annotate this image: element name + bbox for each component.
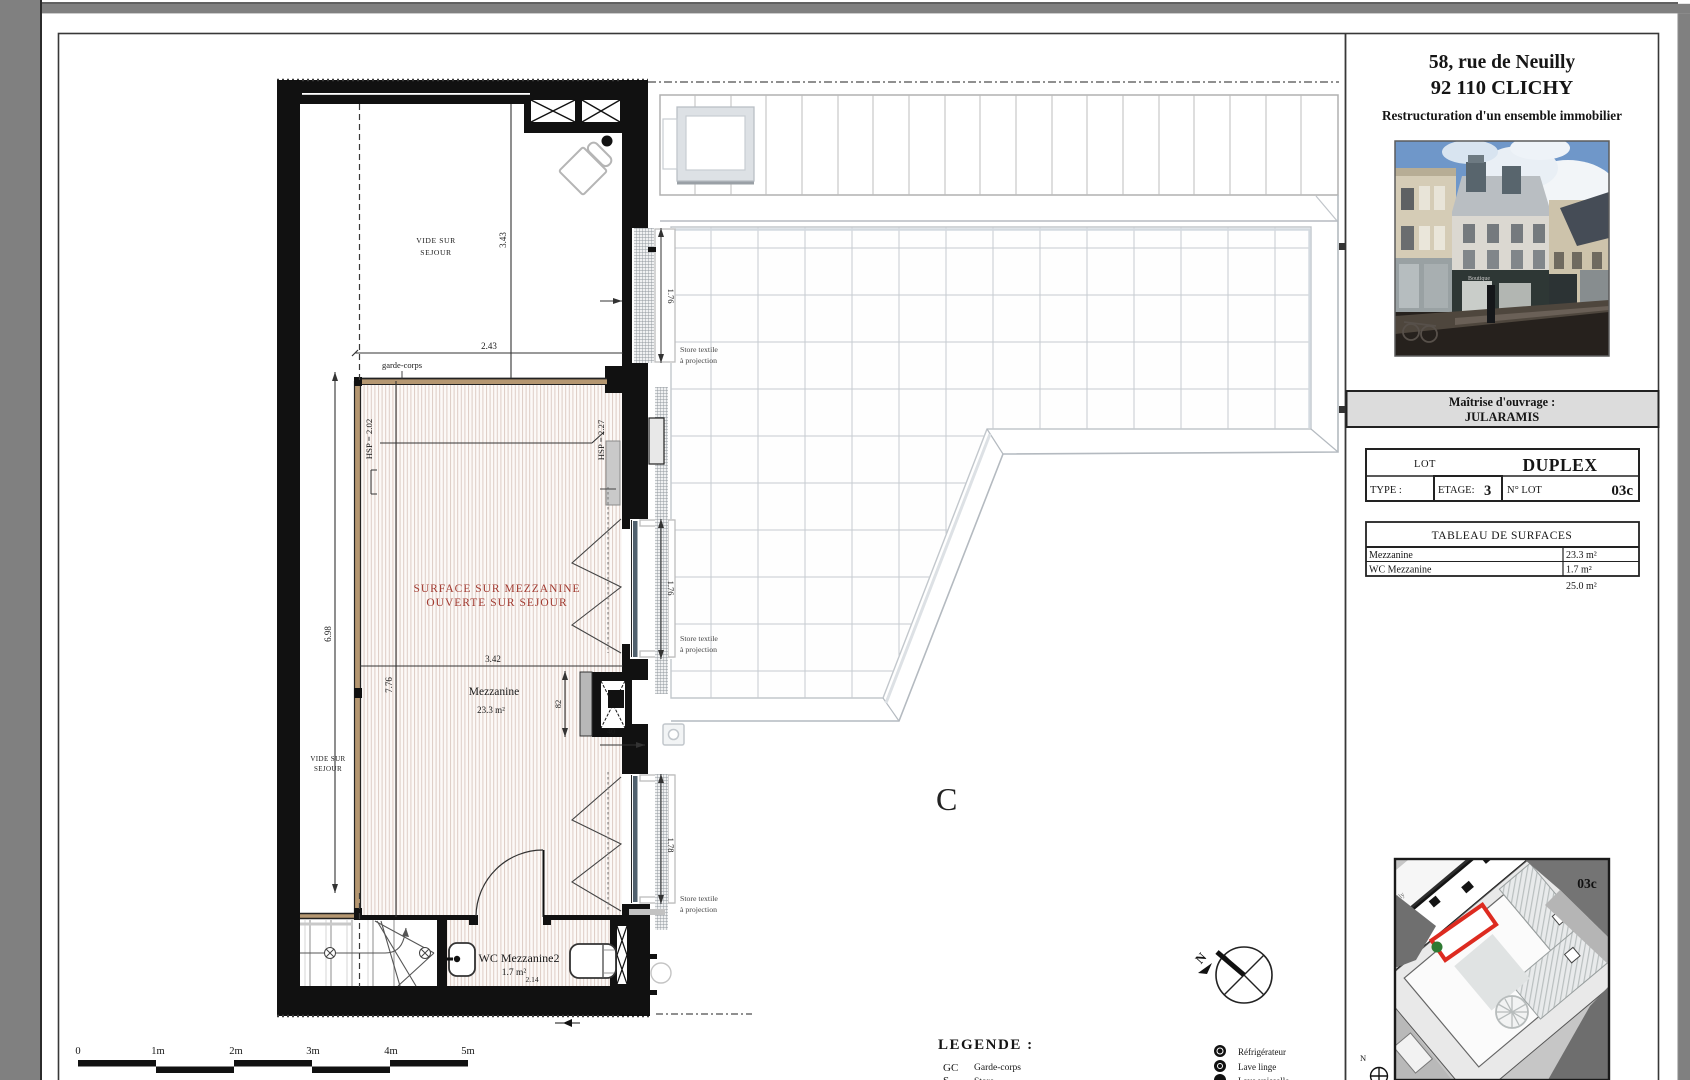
svg-text:Lave vaisselle: Lave vaisselle	[1238, 1076, 1289, 1080]
svg-text:N: N	[1360, 1053, 1366, 1063]
svg-text:ETAGE:: ETAGE:	[1438, 485, 1475, 496]
svg-text:3m: 3m	[306, 1046, 319, 1057]
svg-text:HSP = 2.27: HSP = 2.27	[596, 419, 606, 460]
svg-text:7.76: 7.76	[384, 677, 394, 693]
svg-text:N° LOT: N° LOT	[1507, 485, 1542, 496]
svg-text:SEJOUR: SEJOUR	[314, 765, 342, 773]
svg-text:2.43: 2.43	[481, 341, 497, 351]
svg-text:1.76: 1.76	[666, 581, 676, 596]
svg-text:92 110 CLICHY: 92 110 CLICHY	[1431, 77, 1574, 99]
svg-text:1.7 m²: 1.7 m²	[1566, 565, 1592, 576]
svg-text:3: 3	[1484, 483, 1491, 499]
svg-text:garde-corps: garde-corps	[382, 360, 422, 370]
svg-text:2m: 2m	[229, 1046, 242, 1057]
svg-text:1m: 1m	[151, 1046, 164, 1057]
svg-text:Réfrigérateur: Réfrigérateur	[1238, 1047, 1286, 1057]
svg-text:2.14: 2.14	[525, 975, 538, 984]
svg-text:23.3 m²: 23.3 m²	[477, 705, 505, 715]
svg-text:WC Mezzanine: WC Mezzanine	[1369, 565, 1432, 576]
svg-text:5m: 5m	[461, 1046, 474, 1057]
svg-text:23.3 m²: 23.3 m²	[1566, 550, 1597, 561]
svg-text:à projection: à projection	[680, 356, 717, 365]
svg-text:JULARAMIS: JULARAMIS	[1465, 410, 1539, 424]
svg-text:TYPE :: TYPE :	[1370, 485, 1402, 496]
svg-text:Garde-corps: Garde-corps	[974, 1063, 1021, 1073]
svg-text:TABLEAU DE SURFACES: TABLEAU DE SURFACES	[1432, 530, 1573, 542]
svg-text:1.7 m²: 1.7 m²	[502, 968, 527, 978]
svg-text:1.76: 1.76	[666, 289, 676, 304]
svg-text:OUVERTE SUR SEJOUR: OUVERTE SUR SEJOUR	[426, 597, 567, 609]
svg-text:à projection: à projection	[680, 905, 717, 914]
svg-text:Restructuration d'un ensemble: Restructuration d'un ensemble immobilier	[1382, 108, 1622, 123]
svg-text:Maîtrise d'ouvrage :: Maîtrise d'ouvrage :	[1449, 395, 1555, 409]
svg-text:VIDE SUR: VIDE SUR	[416, 236, 456, 245]
svg-text:C: C	[936, 781, 957, 817]
svg-text:0: 0	[75, 1046, 80, 1057]
svg-text:82: 82	[553, 700, 563, 709]
svg-text:58, rue de Neuilly: 58, rue de Neuilly	[1429, 52, 1575, 73]
svg-text:40: 40	[607, 726, 616, 736]
svg-text:WC Mezzanine2: WC Mezzanine2	[479, 951, 560, 965]
svg-text:Mezzanine: Mezzanine	[469, 686, 519, 698]
svg-text:LOT: LOT	[1414, 459, 1436, 470]
svg-text:03c: 03c	[1611, 483, 1633, 499]
svg-text:Lave linge: Lave linge	[1238, 1062, 1276, 1072]
svg-text:Store textile: Store textile	[680, 634, 718, 643]
svg-text:1.78: 1.78	[666, 838, 676, 853]
svg-text:LEGENDE :: LEGENDE :	[938, 1037, 1034, 1053]
svg-text:4m: 4m	[384, 1046, 397, 1057]
svg-text:25.0 m²: 25.0 m²	[1566, 581, 1597, 592]
svg-text:SURFACE SUR MEZZANINE: SURFACE SUR MEZZANINE	[413, 583, 580, 595]
svg-text:Mezzanine: Mezzanine	[1369, 550, 1413, 561]
svg-text:6.98: 6.98	[323, 626, 333, 642]
svg-text:VIDE SUR: VIDE SUR	[310, 755, 345, 763]
svg-text:à projection: à projection	[680, 645, 717, 654]
svg-text:3.43: 3.43	[498, 232, 508, 248]
svg-text:SEJOUR: SEJOUR	[420, 248, 452, 257]
svg-text:DUPLEX: DUPLEX	[1523, 455, 1598, 475]
svg-text:S: S	[943, 1075, 949, 1080]
svg-text:HSP = 2.02: HSP = 2.02	[364, 419, 374, 460]
svg-text:GC: GC	[943, 1062, 958, 1074]
svg-text:Store textile: Store textile	[680, 345, 718, 354]
svg-text:Boutique: Boutique	[1468, 276, 1490, 282]
svg-text:Store textile: Store textile	[680, 894, 718, 903]
svg-text:03c: 03c	[1577, 876, 1597, 891]
svg-text:3.42: 3.42	[485, 654, 501, 664]
